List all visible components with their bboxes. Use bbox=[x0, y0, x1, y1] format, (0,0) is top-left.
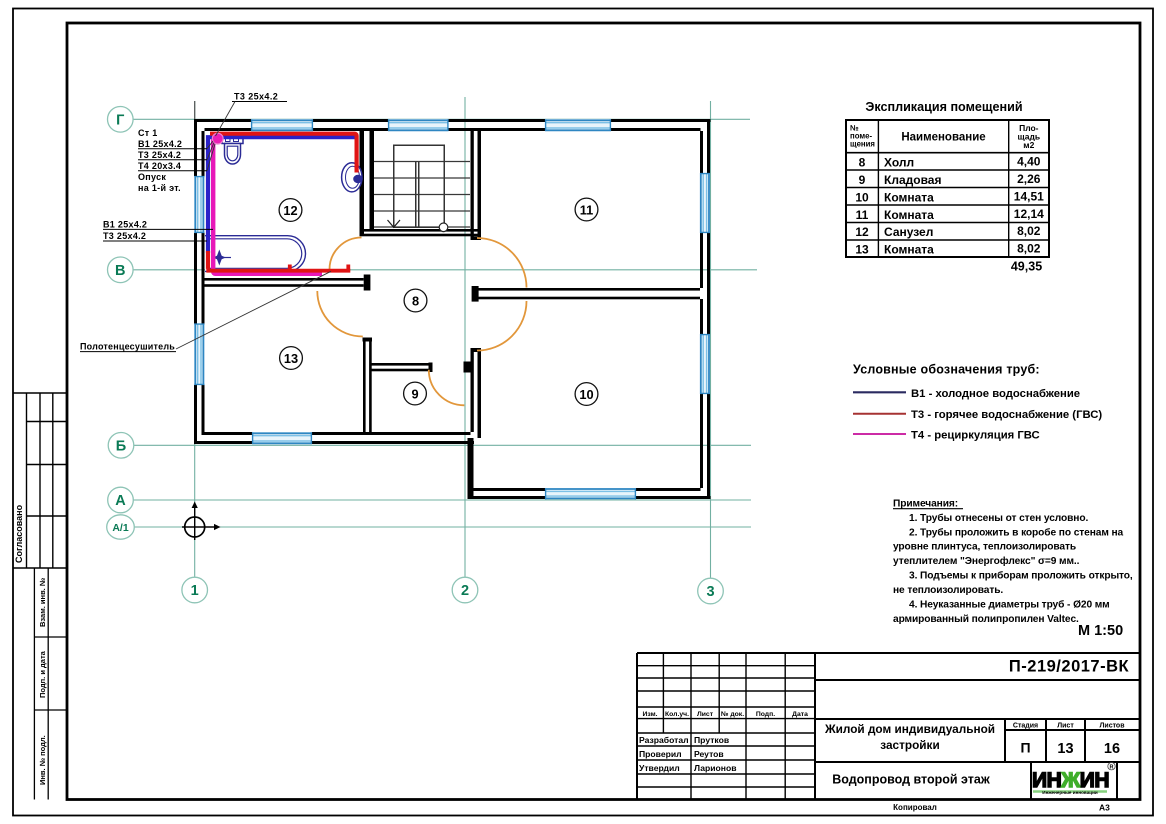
svg-text:уровне плинтуса, теплоизолиров: уровне плинтуса, теплоизолировать bbox=[893, 542, 1076, 553]
svg-text:4,40: 4,40 bbox=[1017, 155, 1041, 169]
svg-text:утеплителем "Энергофлекс" σ=9: утеплителем "Энергофлекс" σ=9 мм.. bbox=[893, 555, 1080, 567]
svg-text:Жилой дом индивидуальной: Жилой дом индивидуальной bbox=[824, 722, 995, 736]
svg-text:Проверил: Проверил bbox=[639, 749, 682, 759]
svg-text:Г: Г bbox=[116, 113, 124, 129]
svg-text:Холл: Холл bbox=[884, 156, 914, 170]
svg-text:10: 10 bbox=[855, 190, 869, 204]
svg-text:Санузел: Санузел bbox=[884, 225, 933, 239]
svg-text:Т4 - рециркуляция ГВС: Т4 - рециркуляция ГВС bbox=[911, 430, 1040, 442]
svg-text:2,26: 2,26 bbox=[1017, 172, 1041, 186]
svg-text:Инженерные инновации: Инженерные инновации bbox=[1042, 790, 1098, 795]
svg-text:ИНЖИН: ИНЖИН bbox=[1032, 769, 1109, 792]
svg-text:12: 12 bbox=[855, 225, 869, 239]
svg-text:11: 11 bbox=[580, 202, 594, 217]
svg-text:М 1:50: М 1:50 bbox=[1078, 623, 1123, 639]
svg-text:Условные обозначения труб:: Условные обозначения труб: bbox=[853, 363, 1040, 377]
svg-text:Б: Б bbox=[116, 439, 126, 455]
svg-text:не теплоизолировать.: не теплоизолировать. bbox=[893, 585, 1003, 596]
svg-text:армированный полипропилен Valt: армированный полипропилен Valtec. bbox=[893, 614, 1079, 625]
svg-text:49,35: 49,35 bbox=[1011, 260, 1042, 274]
svg-text:8,02: 8,02 bbox=[1017, 224, 1041, 238]
svg-text:Прутков: Прутков bbox=[694, 735, 729, 745]
svg-text:П-219/2017-ВК: П-219/2017-ВК bbox=[1009, 658, 1130, 676]
svg-text:Дата: Дата bbox=[792, 711, 808, 718]
svg-text:Т3 25х4.2: Т3 25х4.2 bbox=[234, 92, 278, 102]
svg-text:Ст 1: Ст 1 bbox=[138, 128, 158, 138]
svg-text:Ларионов: Ларионов bbox=[694, 763, 737, 773]
svg-text:Кол.уч.: Кол.уч. bbox=[665, 711, 689, 718]
svg-text:застройки: застройки bbox=[880, 738, 939, 752]
svg-text:Т3 - горячее водоснабжение (ГВ: Т3 - горячее водоснабжение (ГВС) bbox=[911, 409, 1102, 421]
svg-text:13: 13 bbox=[1057, 741, 1073, 757]
svg-text:Согласовано: Согласовано bbox=[14, 504, 24, 563]
svg-text:Взам. инв. №: Взам. инв. № bbox=[38, 578, 47, 627]
svg-text:Комната: Комната bbox=[884, 190, 934, 204]
svg-text:А/1: А/1 bbox=[112, 522, 129, 534]
svg-text:Стадия: Стадия bbox=[1013, 723, 1038, 730]
svg-text:8,02: 8,02 bbox=[1017, 242, 1041, 256]
svg-text:Лист: Лист bbox=[1057, 723, 1074, 730]
svg-text:Полотенцесушитель: Полотенцесушитель bbox=[80, 342, 175, 352]
svg-text:1. Трубы отнесены от стен усло: 1. Трубы отнесены от стен условно. bbox=[909, 512, 1088, 524]
svg-text:13: 13 bbox=[284, 351, 298, 366]
svg-text:Подп. и дата: Подп. и дата bbox=[38, 650, 47, 698]
svg-text:№ док.: № док. bbox=[721, 711, 744, 718]
svg-text:Комната: Комната bbox=[884, 243, 934, 257]
svg-text:Листов: Листов bbox=[1099, 723, 1125, 730]
svg-text:Утвердил: Утвердил bbox=[639, 763, 680, 773]
svg-text:В: В bbox=[115, 263, 125, 279]
svg-text:Изм.: Изм. bbox=[642, 711, 657, 718]
svg-text:Инв. № подл.: Инв. № подл. bbox=[38, 735, 47, 785]
svg-text:А3: А3 bbox=[1099, 803, 1110, 813]
svg-text:Т3 25х4.2: Т3 25х4.2 bbox=[103, 231, 146, 241]
svg-text:Водопровод второй этаж: Водопровод второй этаж bbox=[832, 773, 990, 787]
svg-text:Примечания:: Примечания: bbox=[893, 499, 958, 510]
svg-text:8: 8 bbox=[859, 156, 866, 170]
svg-text:11: 11 bbox=[856, 208, 869, 222]
svg-text:щения: щения bbox=[850, 140, 875, 149]
svg-text:Копировал: Копировал bbox=[893, 803, 937, 812]
svg-text:Лист: Лист bbox=[697, 711, 714, 718]
svg-text:2: 2 bbox=[461, 583, 469, 599]
svg-text:на 1-й эт.: на 1-й эт. bbox=[138, 183, 181, 193]
svg-text:R: R bbox=[1110, 765, 1114, 771]
svg-text:Комната: Комната bbox=[884, 208, 934, 222]
svg-text:В1 - холодное водоснабжение: В1 - холодное водоснабжение bbox=[911, 388, 1080, 400]
svg-text:Т4 20х3.4: Т4 20х3.4 bbox=[138, 161, 181, 171]
svg-text:4. Неуказанные диаметры труб -: 4. Неуказанные диаметры труб - Ø20 мм bbox=[909, 599, 1110, 611]
svg-text:9: 9 bbox=[859, 173, 866, 187]
svg-text:16: 16 bbox=[1104, 741, 1120, 757]
svg-text:3: 3 bbox=[706, 584, 714, 600]
svg-text:м2: м2 bbox=[1023, 140, 1034, 150]
svg-text:Кладовая: Кладовая bbox=[884, 173, 941, 187]
svg-text:12,14: 12,14 bbox=[1014, 207, 1044, 221]
svg-text:В1 25х4.2: В1 25х4.2 bbox=[138, 139, 182, 149]
svg-text:П: П bbox=[1020, 740, 1030, 756]
svg-text:Подп.: Подп. bbox=[756, 711, 775, 718]
svg-text:12: 12 bbox=[283, 203, 297, 218]
svg-text:2. Трубы проложить в коробе по: 2. Трубы проложить в коробе по стенам на bbox=[909, 526, 1124, 538]
svg-text:1: 1 bbox=[191, 583, 199, 599]
svg-text:14,51: 14,51 bbox=[1014, 189, 1044, 203]
svg-text:Опуск: Опуск bbox=[138, 172, 166, 182]
svg-text:Наименование: Наименование bbox=[901, 132, 985, 144]
svg-text:13: 13 bbox=[855, 243, 869, 257]
svg-text:9: 9 bbox=[411, 386, 418, 401]
svg-text:А: А bbox=[115, 493, 126, 509]
svg-text:Разработал: Разработал bbox=[639, 735, 689, 745]
svg-text:Реутов: Реутов bbox=[694, 749, 724, 759]
svg-text:10: 10 bbox=[579, 387, 593, 402]
svg-text:3. Подъемы к приборам проложит: 3. Подъемы к приборам проложить открыто, bbox=[909, 570, 1133, 582]
svg-text:В1 25х4.2: В1 25х4.2 bbox=[103, 220, 147, 230]
svg-text:Экспликация помещений: Экспликация помещений bbox=[865, 100, 1022, 114]
svg-text:Т3 25х4.2: Т3 25х4.2 bbox=[138, 150, 181, 160]
svg-text:8: 8 bbox=[412, 293, 419, 308]
